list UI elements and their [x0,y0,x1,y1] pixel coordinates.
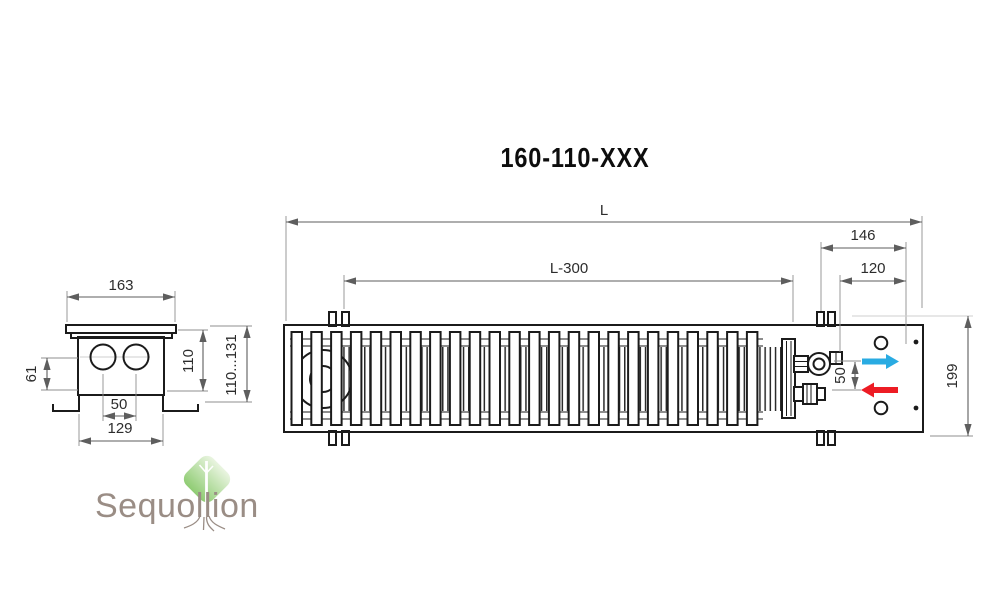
outlet-stub [794,387,803,401]
grille-slat [311,332,322,425]
technical-drawing-page: 160-110-XXX 163 61 [0,0,1000,600]
page-title: 160-110-XXX [500,143,649,173]
svg-text:110: 110 [180,349,197,373]
grille-slat [450,332,461,425]
grille-slat [490,332,501,425]
grille-slat [391,332,402,425]
outlet-union-nut [803,384,817,404]
ball-valve-body [808,353,830,375]
grille-slat [688,332,699,425]
grille-slat [292,332,303,425]
grille-slat [509,332,520,425]
grille-slat [351,332,362,425]
tab [817,431,824,445]
grille-slat [549,332,560,425]
grille-slat [707,332,718,425]
grille-slat [668,332,679,425]
svg-text:L-300: L-300 [550,260,588,277]
outlet-end-fitting [817,388,825,400]
tab [342,312,349,326]
grille-slat [589,332,600,425]
svg-text:120: 120 [860,260,885,277]
rivet-bottom [914,406,919,411]
svg-text:146: 146 [850,227,875,244]
drawing-canvas: 160-110-XXX 163 61 [0,0,1000,600]
top-flange [66,325,176,333]
inlet-union-nut [794,356,808,372]
grille-slat [727,332,738,425]
grille-slat [470,332,481,425]
tab [329,431,336,445]
tab [828,431,835,445]
svg-text:L: L [600,202,608,219]
grille-slat [569,332,580,425]
svg-text:199: 199 [944,363,961,388]
svg-text:163: 163 [108,277,133,294]
svg-text:129: 129 [107,420,132,437]
grille-slat [430,332,441,425]
svg-text:50: 50 [111,396,128,413]
grille-slat [628,332,639,425]
grille-slat [648,332,659,425]
svg-text:110...131: 110...131 [223,334,240,395]
tab [342,431,349,445]
grille-slat [608,332,619,425]
grille-slat [371,332,382,425]
grille-slat [410,332,421,425]
tab [329,312,336,326]
svg-text:61: 61 [23,366,40,383]
tab [828,312,835,326]
grille-slat [747,332,758,425]
logo-wordmark: Sequollion [95,487,259,525]
exchanger-end-plate [782,339,795,418]
rivet-top [914,340,919,345]
grille-slat [331,332,342,425]
grille-slat [529,332,540,425]
tab [817,312,824,326]
svg-text:50: 50 [832,367,849,384]
